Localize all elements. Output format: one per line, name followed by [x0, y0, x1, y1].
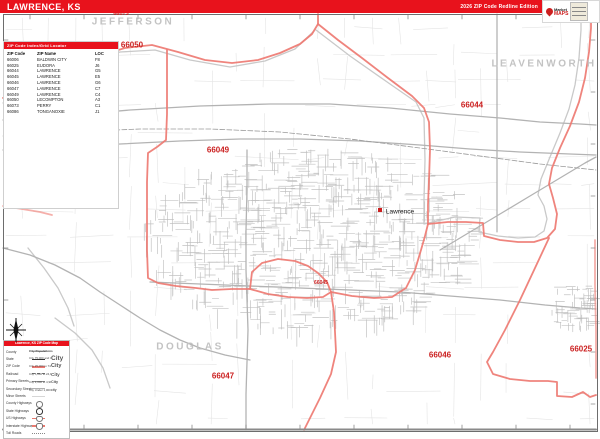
zip-table-cell: TONGANOXIE — [37, 109, 95, 115]
county-label-douglas: DOUGLAS — [156, 342, 224, 353]
zip-table-body: 66006BALDWIN CITYF866025EUDORAJ666044LAW… — [4, 57, 118, 115]
logo-fineprint — [570, 2, 588, 21]
badge-interstate-symbol — [32, 423, 45, 429]
legend-item-label: State Highways — [6, 409, 32, 413]
badge-us-symbol — [32, 415, 45, 421]
city-label-lawrence: Lawrence — [386, 209, 414, 216]
legend-item: US Highways — [6, 415, 46, 422]
zip-label-66047: 66047 — [212, 372, 234, 381]
toll-line-symbol — [32, 430, 45, 436]
zip-index-panel: ZIP Code Index/Grid Locator ZIP Code ZIP… — [3, 41, 119, 209]
badge-oval-symbol — [32, 400, 45, 406]
legend-city-row: City Under 1,000city — [29, 386, 68, 394]
city-marker — [378, 208, 382, 212]
zip-label-66045: 66045 — [314, 280, 328, 286]
zip-table-row: 66086TONGANOXIEJ1 — [4, 109, 118, 115]
legend-item-label: Minor Streets — [6, 394, 32, 398]
zip-label-66025: 66025 — [570, 345, 592, 354]
legend-city-sample: City — [51, 355, 63, 362]
legend-item: Interstate Highways — [6, 422, 46, 429]
legend-city-sample: City — [51, 372, 60, 377]
zip-table-cell: J1 — [95, 109, 113, 115]
zip-label-66046: 66046 — [429, 351, 451, 360]
compass-rose-icon — [3, 317, 29, 343]
highway-shield-icon — [36, 423, 44, 430]
legend-item-label: Interstate Highways — [6, 424, 32, 428]
legend-item: Toll Roads — [6, 429, 46, 436]
legend-city-row: City 1,000 to 4,999City — [29, 378, 68, 386]
map-pin-icon — [545, 7, 555, 17]
legend-city-label: City 1,000 to 4,999 — [29, 380, 51, 384]
legend-city-label: City Under 1,000 — [29, 388, 51, 392]
county-label-jefferson: JEFFERSON — [92, 17, 175, 28]
legend-item: State Highways — [6, 407, 46, 414]
logo-wordmark: Market MAPS — [554, 8, 568, 16]
logo-brand-bottom: MAPS — [554, 12, 568, 16]
publisher-logo: Market MAPS — [542, 0, 600, 23]
legend-city-column: City Populations City 75,000 and OverCit… — [29, 348, 68, 394]
title-banner: LAWRENCE, KS 2026 ZIP Code Redline Editi… — [0, 0, 600, 13]
legend-item-label: Toll Roads — [6, 431, 32, 435]
page-title: LAWRENCE, KS — [7, 2, 81, 12]
map-legend-panel: Lawrence, KS ZIP Code Map CountyStateZIP… — [3, 340, 70, 439]
legend-city-row: City 75,000 and OverCity — [29, 354, 68, 362]
zip-table-cell: 66086 — [7, 109, 37, 115]
highway-shield-icon — [36, 408, 44, 415]
legend-city-sample: City — [51, 363, 61, 369]
legend-city-label: City 75,000 and Over — [29, 356, 51, 360]
zip-index-header: ZIP Code Index/Grid Locator — [4, 42, 118, 49]
legend-item: County Highways — [6, 400, 46, 407]
legend-city-row: City 25,000 to 74,999City — [29, 362, 68, 370]
edition-label: 2026 ZIP Code Redline Edition — [460, 4, 538, 10]
zip-label-66049: 66049 — [207, 146, 229, 155]
legend-item-label: County Highways — [6, 401, 32, 405]
map-page: LAWRENCE, KS 2026 ZIP Code Redline Editi… — [0, 0, 600, 439]
badge-oval-dark-symbol — [32, 408, 45, 414]
highway-shield-icon — [36, 401, 44, 408]
zip-label-66050: 66050 — [121, 41, 143, 50]
legend-city-sample: City — [51, 380, 58, 384]
legend-city-row: City 5,000 to 24,999City — [29, 370, 68, 378]
legend-item-label: US Highways — [6, 416, 32, 420]
legend-city-sample: city — [51, 388, 57, 392]
legend-city-label: City 25,000 to 74,999 — [29, 364, 51, 368]
zip-label-66044: 66044 — [461, 101, 483, 110]
county-label-leavenworth: LEAVENWORTH — [491, 59, 596, 70]
legend-city-label: City 5,000 to 24,999 — [29, 372, 51, 376]
